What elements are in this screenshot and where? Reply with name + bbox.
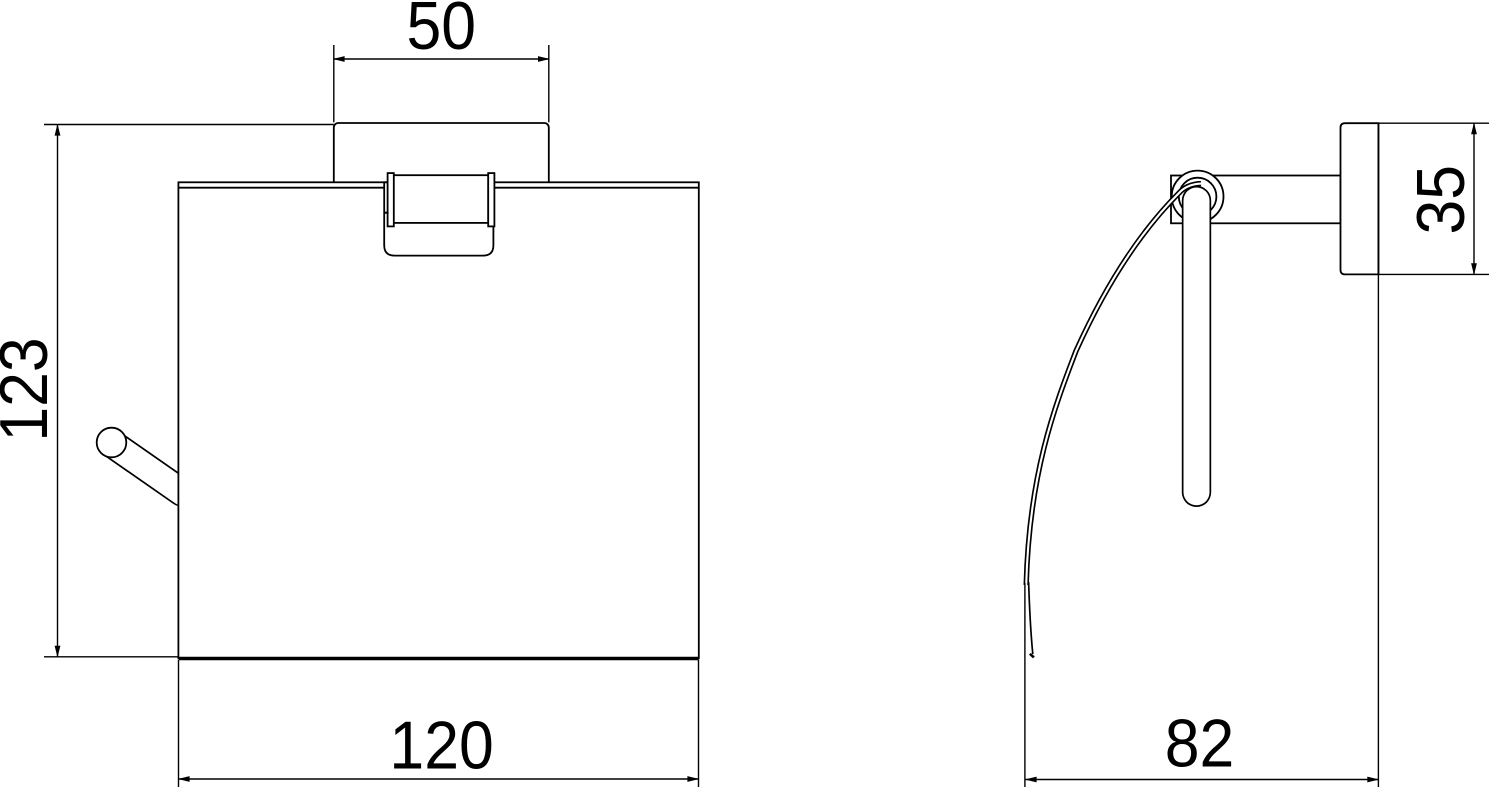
svg-text:50: 50 xyxy=(407,0,477,64)
svg-text:123: 123 xyxy=(0,337,62,441)
svg-text:35: 35 xyxy=(1402,165,1478,235)
svg-text:82: 82 xyxy=(1165,705,1235,781)
svg-text:120: 120 xyxy=(389,707,493,783)
